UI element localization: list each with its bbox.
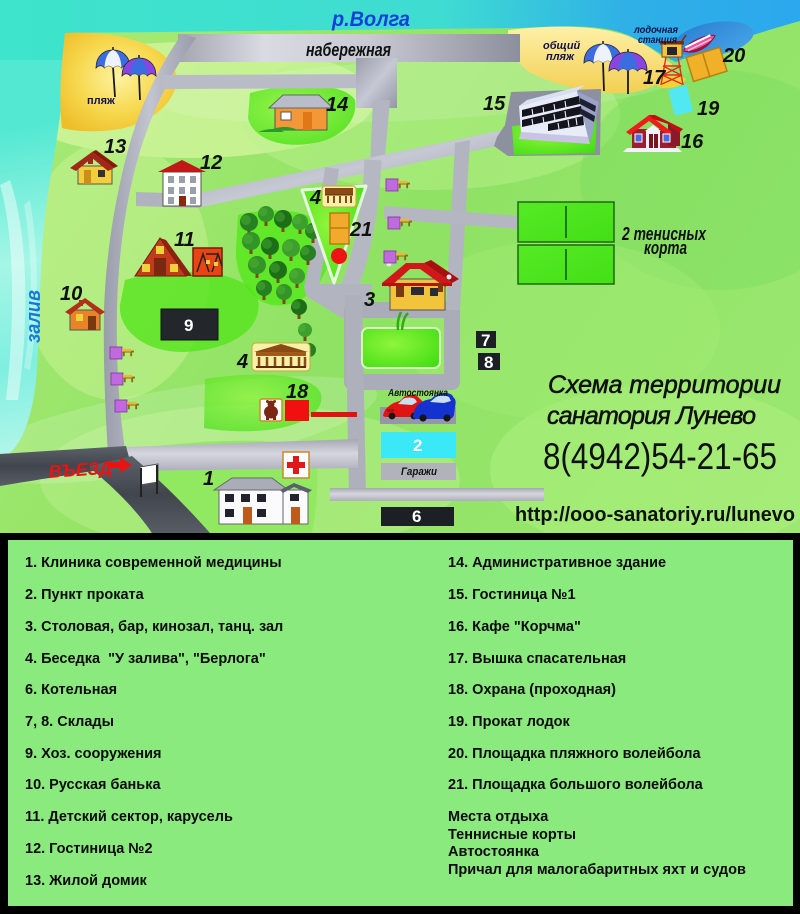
svg-text:17: 17 bbox=[643, 67, 666, 89]
svg-text:15: 15 bbox=[483, 93, 506, 115]
svg-text:Гаражи: Гаражи bbox=[401, 466, 437, 478]
svg-text:пляж: пляж bbox=[546, 51, 575, 63]
svg-text:санатория Лунево: санатория Лунево bbox=[547, 402, 756, 430]
svg-text:7: 7 bbox=[481, 331, 490, 350]
svg-text:4: 4 bbox=[309, 187, 321, 209]
svg-text:12: 12 bbox=[200, 152, 222, 174]
svg-text:8: 8 bbox=[484, 353, 493, 372]
svg-text:3: 3 bbox=[364, 289, 375, 311]
svg-text:10: 10 bbox=[60, 283, 82, 305]
svg-text:20: 20 bbox=[722, 45, 745, 67]
svg-text:4: 4 bbox=[236, 351, 248, 373]
svg-text:Схема территории: Схема территории bbox=[548, 371, 781, 399]
svg-text:Автостоянка: Автостоянка bbox=[387, 387, 448, 399]
svg-text:корта: корта bbox=[644, 238, 687, 258]
svg-text:2: 2 bbox=[413, 436, 422, 455]
svg-text:http://ooo-sanatoriy.ru/lunevo: http://ooo-sanatoriy.ru/lunevo bbox=[515, 504, 795, 526]
svg-text:18: 18 bbox=[286, 381, 309, 403]
svg-text:1: 1 bbox=[203, 468, 214, 490]
svg-text:6: 6 bbox=[412, 507, 421, 526]
svg-text:11: 11 bbox=[174, 229, 195, 251]
svg-text:21: 21 bbox=[349, 219, 372, 241]
svg-text:залив: залив bbox=[23, 290, 45, 343]
svg-text:9: 9 bbox=[184, 316, 193, 335]
svg-text:8(4942)54-21-65: 8(4942)54-21-65 bbox=[543, 436, 777, 477]
svg-text:набережная: набережная bbox=[306, 40, 391, 60]
svg-text:пляж: пляж bbox=[87, 95, 115, 107]
svg-text:13: 13 bbox=[104, 136, 126, 158]
svg-text:р.Волга: р.Волга bbox=[331, 8, 410, 31]
svg-text:14: 14 bbox=[326, 94, 348, 116]
svg-text:19: 19 bbox=[697, 98, 720, 120]
svg-text:станция: станция bbox=[638, 35, 677, 46]
svg-text:16: 16 bbox=[681, 131, 704, 153]
